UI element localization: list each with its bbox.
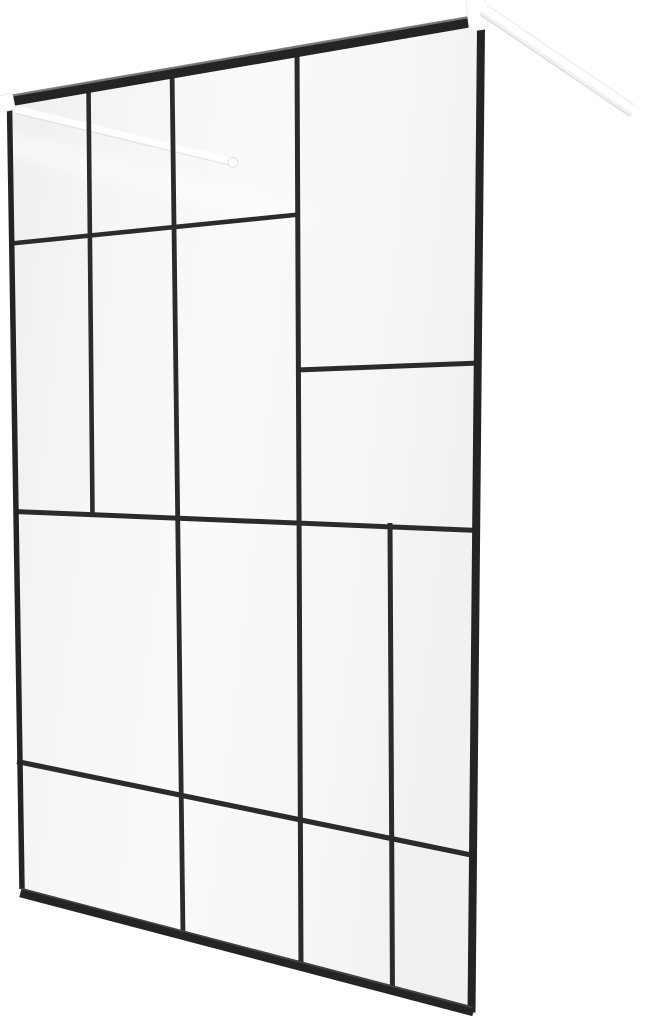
shower-screen-product-image (0, 0, 646, 1024)
support-arm-right-shadow-edge (481, 15, 630, 116)
support-arm-right-body (484, 10, 633, 111)
grid-line-v4 (390, 523, 393, 994)
shower-screen-product-figure (0, 0, 646, 1024)
support-arm-right-top-edge (487, 5, 636, 106)
support-arm-right-shading (482, 13, 631, 114)
support-arm-left-anchor-cap (228, 158, 238, 168)
